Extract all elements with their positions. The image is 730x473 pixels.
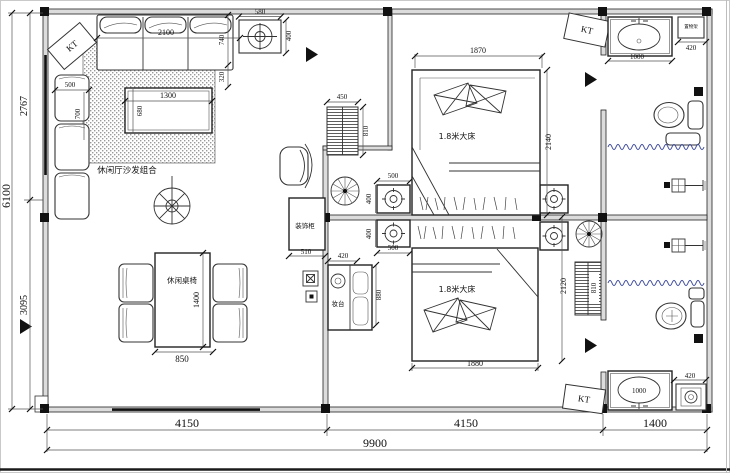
partition-living-bedrooms [323, 146, 328, 412]
dim-sofa-depth: 740 [218, 34, 226, 45]
dim-nightstand2-depth: 400 [365, 228, 373, 239]
dim-closet-width: 450 [337, 93, 348, 101]
bed-1: 1.8米大床 [412, 70, 540, 215]
dining-table [155, 253, 210, 347]
ceiling-fixture [239, 20, 281, 53]
dim-left-top: 2767 [19, 96, 30, 116]
dim-shelf1-width: 420 [686, 44, 697, 52]
dim-dresser-width: 420 [338, 252, 349, 260]
dim-coffee-width: 1300 [160, 91, 176, 100]
dim-bottom-total: 9900 [363, 436, 387, 450]
dresser-label: 妆台 [332, 299, 345, 308]
dim-bed2-length: 2120 [559, 278, 568, 294]
dining-chair [119, 304, 153, 342]
dim-vanity1-width: 1000 [630, 53, 645, 61]
dim-bottom-seg2: 4150 [454, 416, 478, 430]
floor-plan-drawing: KT 580 400 2100 740 320 [0, 0, 730, 473]
dim-nightstand-depth: 400 [365, 193, 373, 204]
armchairs: 500 700 [52, 75, 92, 219]
nightstand-right-2 [540, 222, 568, 250]
closet-wall [388, 9, 392, 150]
vanity-2: 1000 [608, 371, 672, 410]
dim-bottom-seg3: 1400 [643, 416, 667, 430]
dim-dining-length: 1400 [192, 292, 201, 308]
nightstand-right-1 [540, 185, 568, 213]
bed2-label: 1.8米大床 [439, 284, 476, 294]
coffee-table: 1300 680 [122, 88, 215, 133]
dim-nightstand-width: 500 [388, 172, 399, 180]
dim-bottom-seg1: 4150 [175, 416, 199, 430]
kt-label-bath2: KT [563, 384, 606, 413]
dim-left-total: 6100 [0, 184, 13, 208]
dim-closet-height: 810 [362, 125, 370, 136]
floor-drain [694, 334, 703, 343]
dim-bed1-length: 2140 [544, 134, 553, 150]
dining-chair [119, 264, 153, 302]
dim-dining-width: 850 [175, 354, 189, 364]
sofa [97, 15, 233, 70]
dim-fixture-width: 580 [255, 8, 266, 16]
dim-bed1-width: 1870 [470, 46, 486, 55]
window-bottom [112, 408, 260, 411]
radiator-2: 810 [575, 262, 601, 315]
exhaust-fan-1 [331, 177, 359, 205]
deco-cabinet-label: 装饰柜 [295, 221, 315, 230]
kt-text: KT [577, 393, 591, 405]
dim-nightstand2-width: 500 [388, 244, 399, 252]
dining-chair [213, 264, 247, 302]
dim-fixture-height: 400 [285, 30, 293, 41]
dim-armchair-depth: 700 [74, 108, 82, 119]
armchair [55, 173, 89, 219]
dining-set-label: 休闲桌椅 [167, 275, 197, 285]
deco-cabinet: 装饰柜 510 [286, 198, 328, 259]
dim-vanity2-width: 1000 [632, 387, 647, 395]
dim-armchair-width: 500 [65, 81, 76, 89]
storage-rack-label: 置物架 [684, 23, 698, 30]
dim-dresser-length: 880 [375, 289, 383, 300]
dim-radiator2-height: 810 [590, 282, 598, 293]
dim-shelf2-width: 420 [685, 372, 696, 380]
bed1-label: 1.8米大床 [439, 131, 476, 141]
dim-sofa-width: 2100 [158, 28, 174, 37]
dim-bed2-width: 1880 [467, 359, 483, 368]
dim-left-bottom: 3095 [19, 295, 30, 315]
dining-chair [213, 304, 247, 342]
floor-drain [694, 87, 703, 96]
dim-cabinet-width: 510 [301, 248, 312, 256]
bath-mat [666, 133, 700, 145]
dim-sofa-offset: 320 [218, 71, 226, 82]
dim-coffee-depth: 680 [136, 105, 144, 116]
exhaust-fan-2 [576, 221, 602, 247]
floor-plan-page: KT 580 400 2100 740 320 [0, 0, 730, 473]
middle-wall [323, 215, 707, 220]
window-left [44, 55, 47, 175]
living-group-label: 休闲厅沙发组合 [97, 165, 157, 176]
